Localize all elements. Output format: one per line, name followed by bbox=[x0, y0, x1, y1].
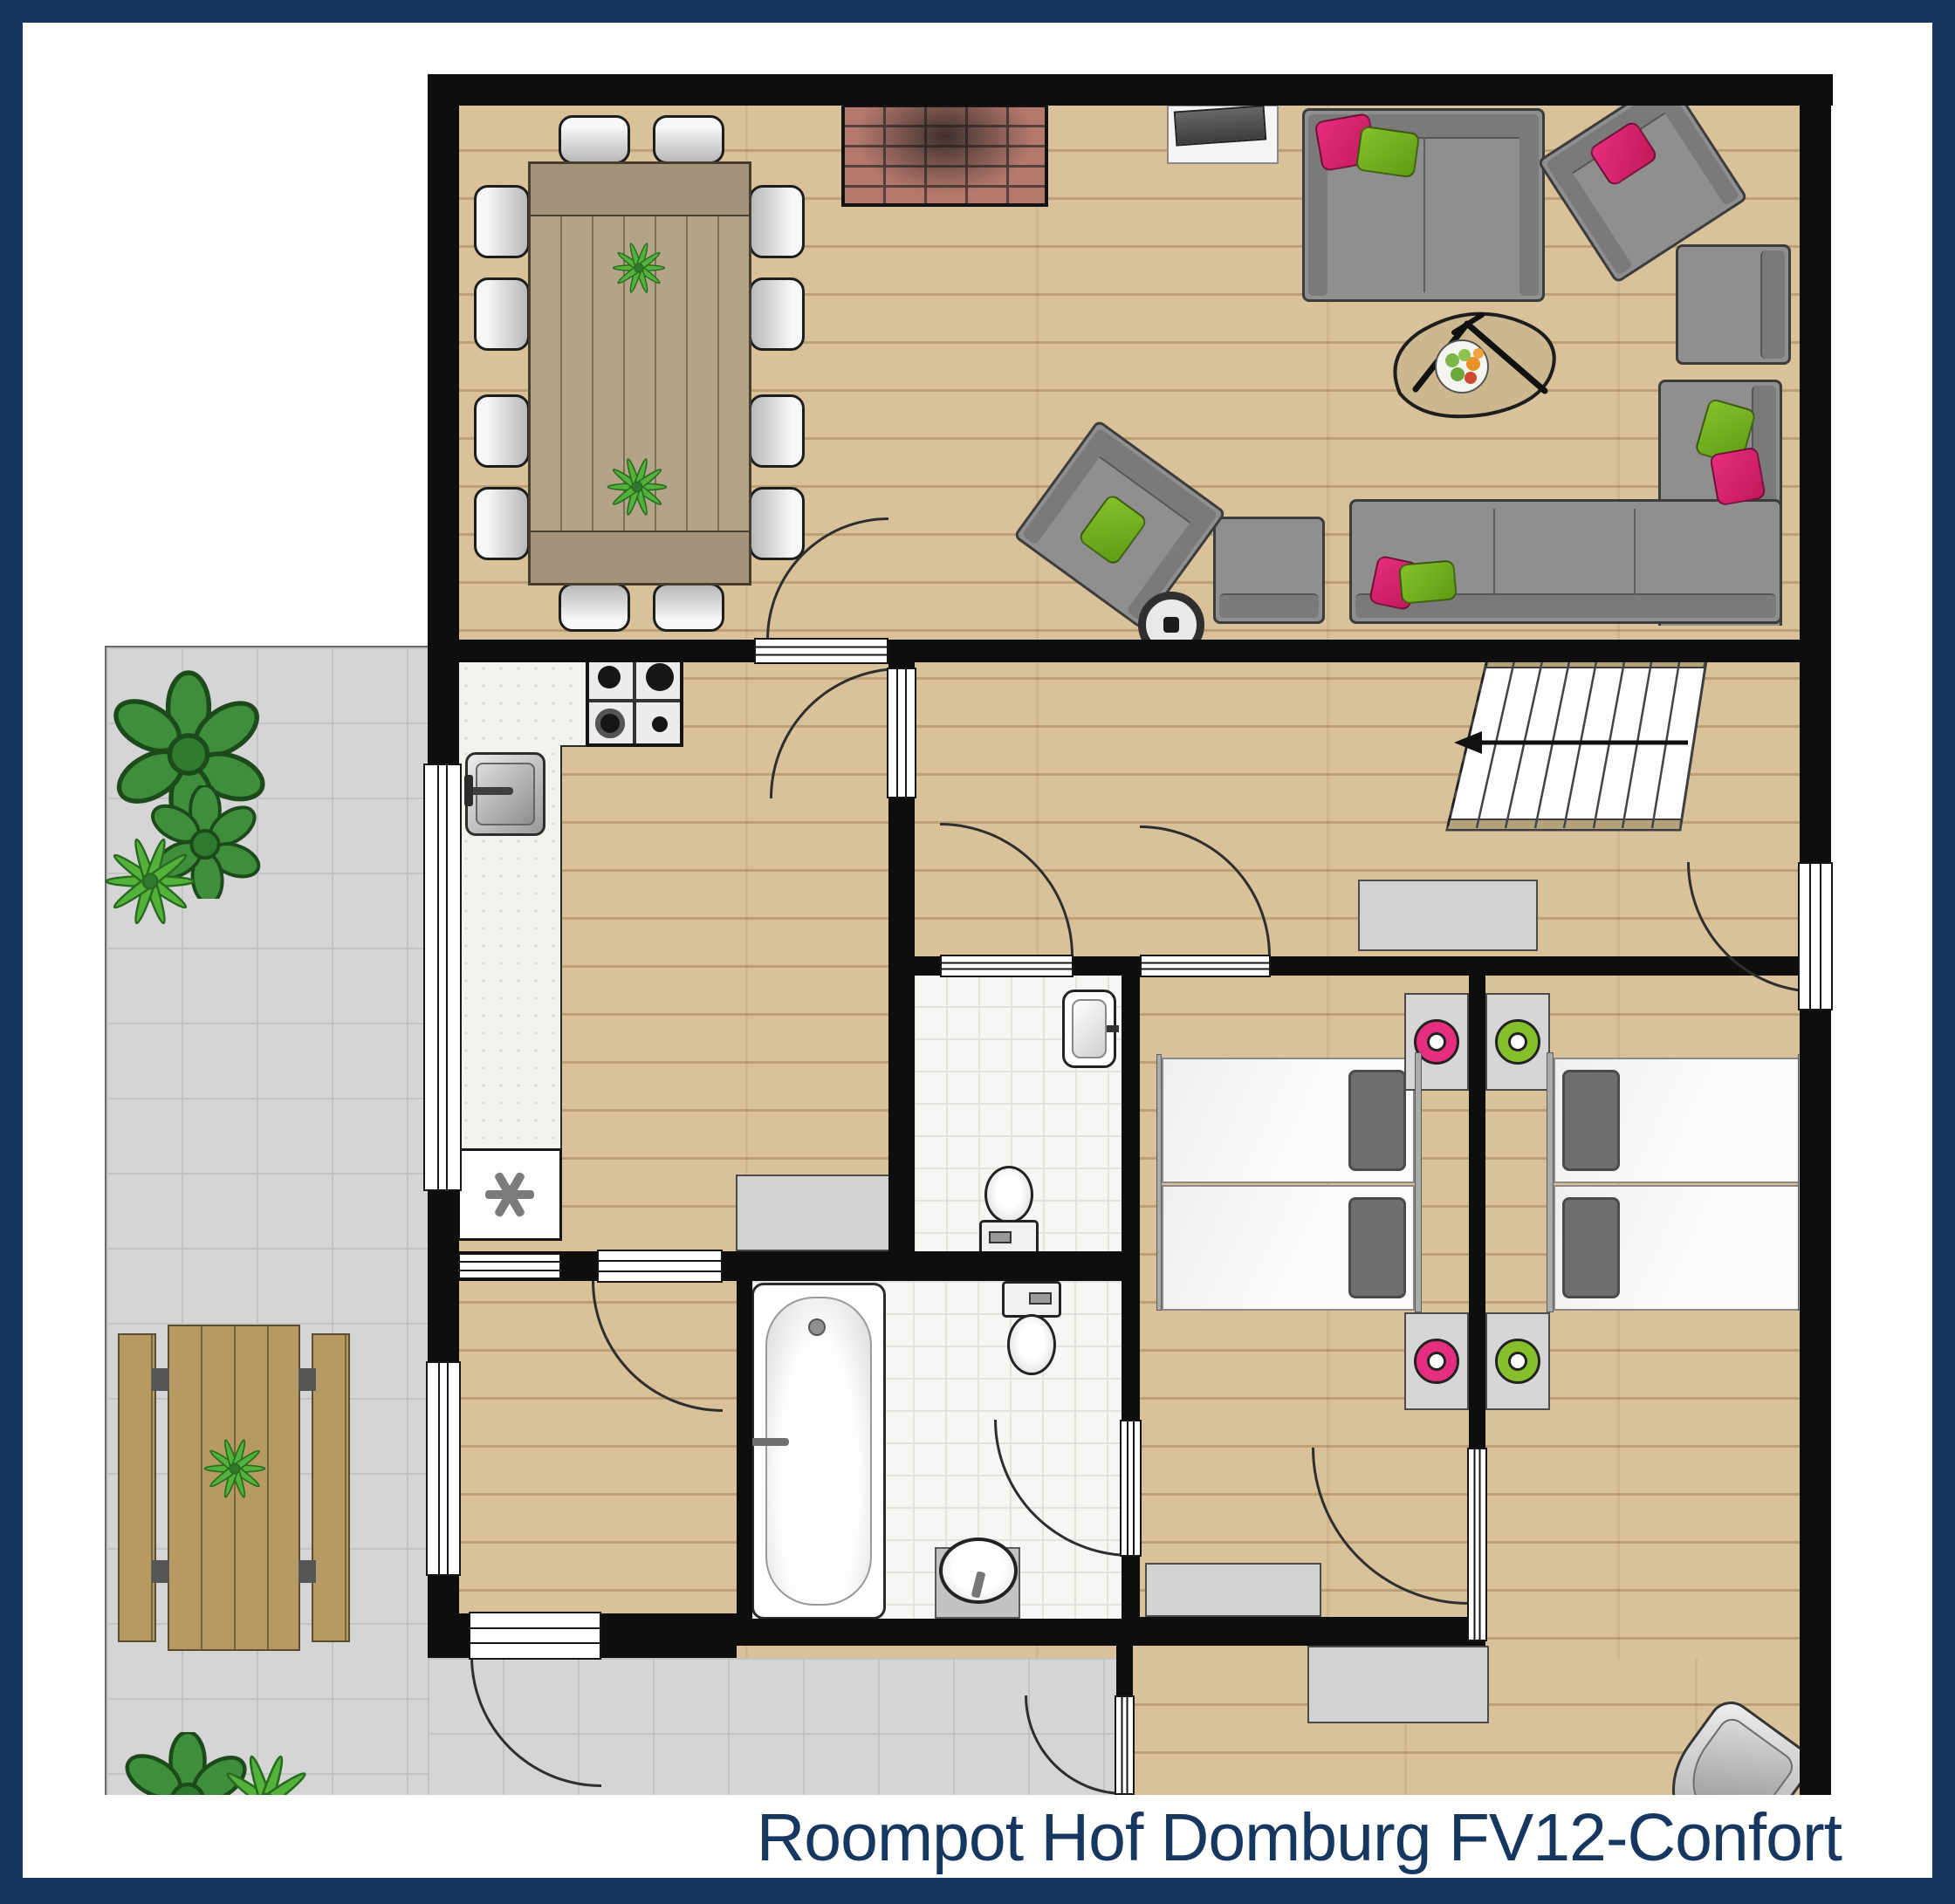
entrance-door-sill bbox=[469, 1612, 601, 1660]
bathroom-sink-icon bbox=[939, 1538, 1018, 1604]
wall bbox=[737, 1281, 752, 1646]
corner-sofa-pillow-pink bbox=[1709, 447, 1766, 507]
bedroom2-dresser bbox=[1307, 1646, 1489, 1723]
bed-single bbox=[1162, 1185, 1415, 1311]
nightstand bbox=[1485, 993, 1550, 1091]
picnic-connector bbox=[152, 1560, 169, 1583]
bedroom1-dresser bbox=[1145, 1563, 1321, 1617]
bed-foot-rail bbox=[1156, 1054, 1162, 1311]
bathtub-icon bbox=[751, 1283, 886, 1620]
bed-headboard-rail bbox=[1415, 1052, 1422, 1312]
nightstand bbox=[1404, 1312, 1469, 1410]
wall bbox=[1469, 974, 1485, 1448]
dining-chair bbox=[559, 583, 630, 632]
dining-chair bbox=[474, 277, 530, 351]
hall-window bbox=[426, 1361, 461, 1576]
picnic-connector bbox=[298, 1368, 316, 1391]
wall bbox=[1122, 1617, 1485, 1646]
exterior-door-sill bbox=[1798, 862, 1833, 1010]
door-sill bbox=[597, 1250, 723, 1283]
door-sill bbox=[1467, 1448, 1487, 1641]
armchair-right-wall bbox=[1676, 244, 1791, 365]
kitchen-faucet-icon bbox=[468, 787, 513, 795]
dining-chair bbox=[749, 487, 805, 560]
lamp-green-icon bbox=[1495, 1339, 1540, 1384]
door-sill bbox=[1115, 1695, 1135, 1795]
bed-headboard-rail bbox=[1547, 1052, 1554, 1312]
picnic-connector bbox=[298, 1560, 316, 1583]
coffee-table bbox=[1381, 303, 1566, 421]
staircase bbox=[1433, 654, 1709, 832]
corner-sofa-pillow-green bbox=[1398, 559, 1458, 604]
lamp-pink-icon bbox=[1414, 1339, 1459, 1384]
wall bbox=[457, 640, 1803, 662]
bathtub-faucet-icon bbox=[747, 1438, 789, 1446]
dining-chair bbox=[474, 487, 530, 560]
kitchen-faucet-handle bbox=[464, 775, 473, 806]
plan-title: Roompot Hof Domburg FV12-Confort bbox=[757, 1795, 1842, 1878]
wall bbox=[1116, 1646, 1133, 1695]
kitchen-cabinet bbox=[736, 1175, 895, 1251]
door-sill bbox=[1120, 1420, 1142, 1557]
bathroom-toilet-tank bbox=[1002, 1281, 1061, 1318]
fireplace bbox=[841, 104, 1048, 207]
door-sill bbox=[887, 668, 916, 798]
caption-band: Roompot Hof Domburg FV12-Confort bbox=[23, 1795, 1932, 1878]
picnic-table-plant bbox=[199, 1433, 271, 1504]
tv-icon bbox=[1174, 105, 1267, 146]
stove-icon bbox=[586, 654, 683, 747]
bed-single bbox=[1554, 1058, 1803, 1183]
terrace-plant-top-spiky bbox=[98, 829, 202, 934]
door-sill bbox=[940, 955, 1074, 977]
table-end-board bbox=[531, 164, 749, 216]
washing-machine-icon bbox=[457, 1148, 562, 1241]
bed-single bbox=[1554, 1185, 1803, 1311]
armchair-small bbox=[1213, 517, 1325, 624]
dining-chair bbox=[653, 583, 724, 632]
kitchen-counter-top bbox=[457, 660, 592, 747]
dining-table bbox=[528, 161, 751, 586]
dining-table-plant bbox=[608, 237, 669, 298]
bathroom-toilet-bowl bbox=[1007, 1314, 1056, 1375]
nightstand bbox=[1485, 1312, 1550, 1410]
kitchen-window bbox=[423, 764, 462, 1191]
wall bbox=[737, 1619, 1122, 1646]
door-sill bbox=[754, 638, 888, 664]
wc-toilet-bowl bbox=[984, 1166, 1033, 1223]
small-window bbox=[458, 1253, 561, 1279]
dining-chair bbox=[749, 277, 805, 351]
lamp-green-icon bbox=[1495, 1019, 1540, 1065]
dining-chair bbox=[653, 115, 724, 164]
floorplan-canvas: Roompot Hof Domburg FV12-Confort bbox=[0, 0, 1955, 1904]
picnic-bench-left bbox=[118, 1333, 156, 1642]
dining-chair bbox=[474, 394, 530, 468]
dining-chair bbox=[749, 185, 805, 258]
table-end-board bbox=[531, 531, 749, 583]
picnic-bench-right bbox=[312, 1333, 350, 1642]
sofa-pillow-green bbox=[1355, 126, 1421, 179]
door-sill bbox=[1140, 955, 1271, 977]
picnic-connector bbox=[152, 1368, 169, 1391]
wc-sink-icon bbox=[1062, 990, 1116, 1068]
wall bbox=[892, 1259, 1122, 1281]
corner-sofa-long bbox=[1349, 499, 1782, 624]
wall bbox=[428, 74, 1833, 106]
dining-chair bbox=[559, 115, 630, 164]
dining-table-plant bbox=[602, 452, 672, 522]
dining-chair bbox=[749, 394, 805, 468]
dining-chair bbox=[474, 185, 530, 258]
bed-single bbox=[1162, 1058, 1415, 1183]
hall-sideboard bbox=[1358, 880, 1538, 951]
